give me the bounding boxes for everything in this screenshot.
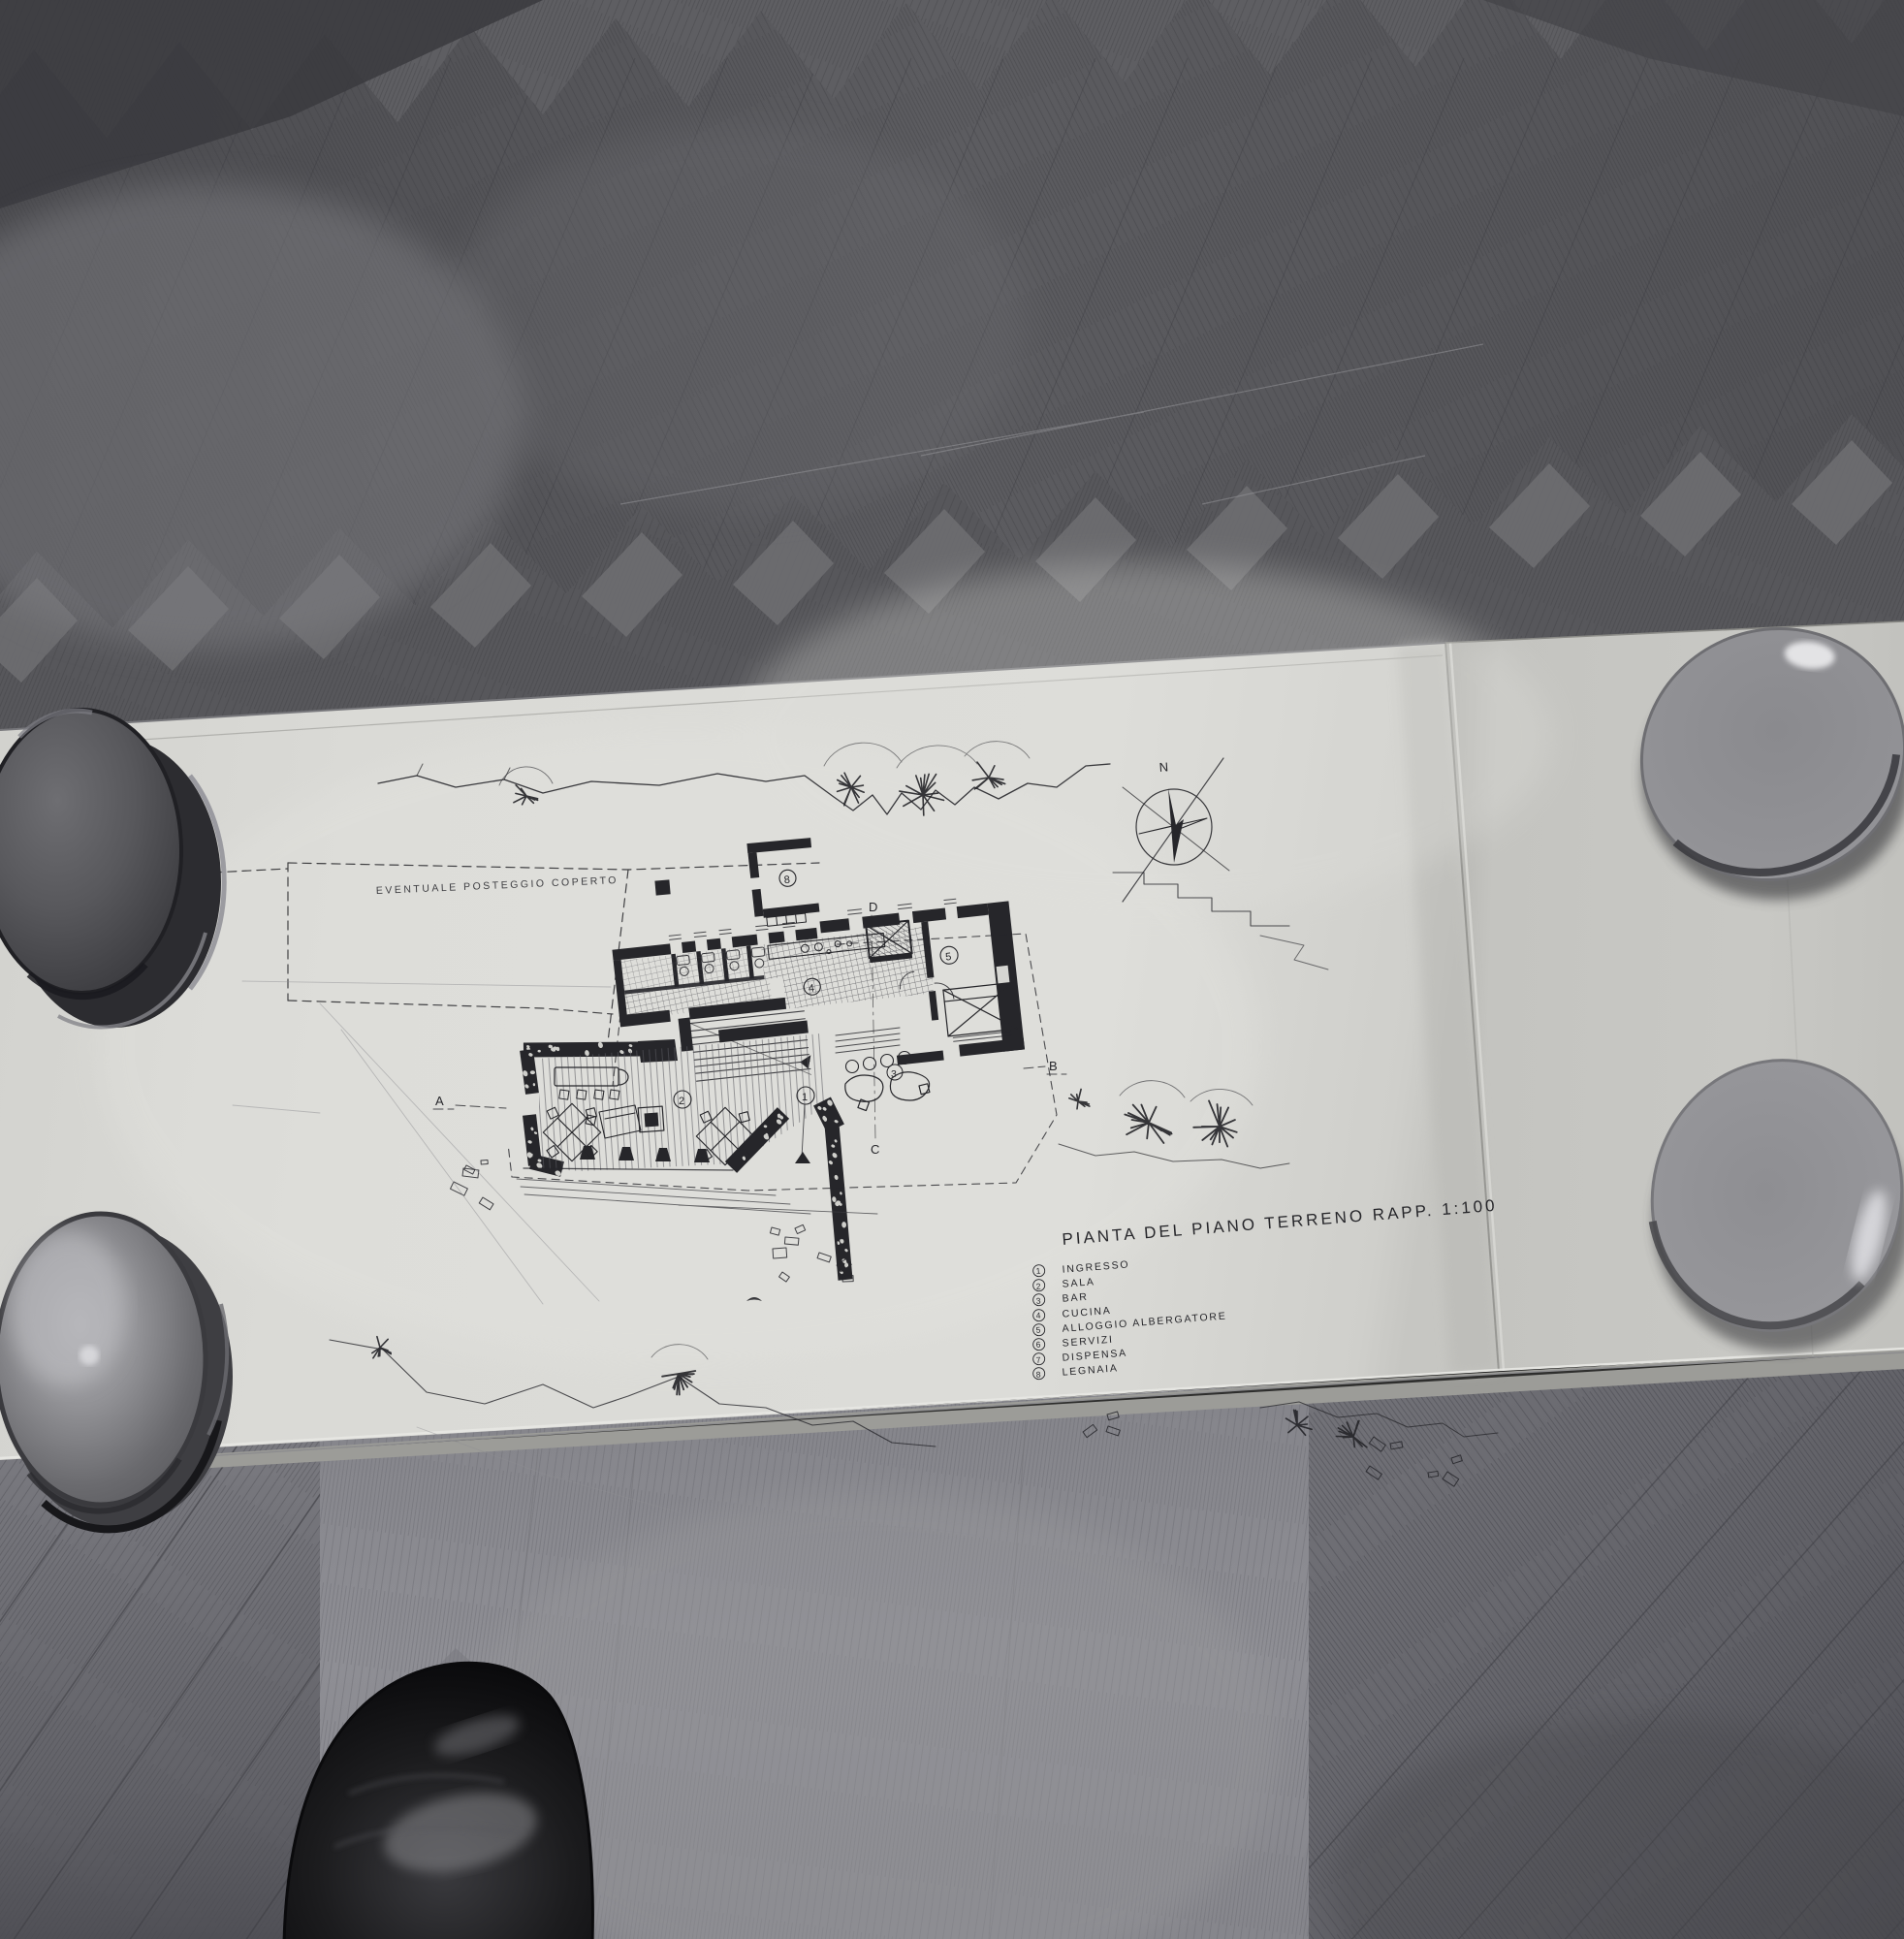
svg-text:BAR: BAR	[1062, 1291, 1089, 1305]
svg-text:A: A	[435, 1094, 444, 1108]
svg-text:D: D	[869, 900, 877, 914]
svg-text:1: 1	[802, 1092, 808, 1103]
svg-text:C: C	[871, 1142, 879, 1157]
svg-text:3: 3	[891, 1068, 897, 1080]
svg-text:2: 2	[679, 1096, 684, 1107]
svg-text:4: 4	[808, 983, 814, 996]
svg-text:5: 5	[945, 951, 952, 964]
svg-text:B: B	[1049, 1059, 1058, 1073]
svg-text:8: 8	[783, 874, 790, 887]
svg-text:N: N	[1158, 759, 1168, 775]
